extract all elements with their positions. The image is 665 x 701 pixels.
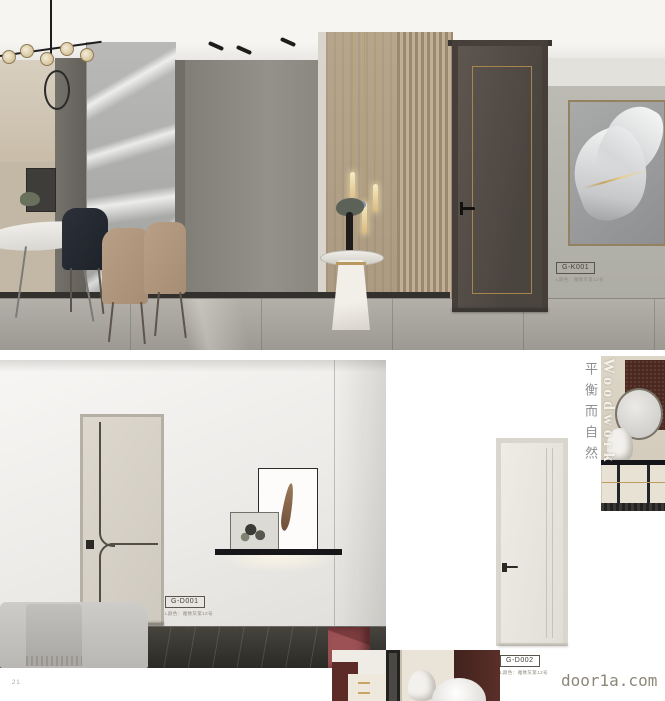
door-gd001-groove-horizontal [111, 543, 158, 545]
feather-illustration [279, 483, 295, 532]
pendant-wire [364, 32, 365, 204]
pendant-wire [375, 36, 376, 186]
black-figurine [346, 212, 353, 254]
door-gk001-handle-lever [462, 207, 475, 210]
product-spec: L颜色：雅致灰第12号 [500, 670, 548, 676]
product-code: G-K001 [556, 262, 595, 274]
tan-dining-chair [144, 222, 186, 294]
chandelier-light [60, 42, 74, 56]
door-gd001-handle [86, 540, 94, 549]
door-gd002-shadow [498, 644, 568, 647]
chandelier-light [40, 52, 54, 66]
plant-decor [20, 192, 40, 206]
chandelier-light [2, 50, 16, 64]
tan-dining-chair [102, 228, 148, 304]
chandelier-light [80, 48, 94, 62]
page-number: 21 [12, 680, 21, 686]
cabinet-gold-handle [358, 692, 370, 694]
framed-abstract-art [230, 512, 279, 551]
product-label-gd002: G-D002 L颜色：雅致灰第12号 [500, 649, 548, 676]
chandelier-rod [50, 0, 52, 60]
door-gd002-slab [501, 443, 563, 643]
door-gd001 [80, 414, 164, 626]
gray-alcove-wall [185, 60, 323, 298]
throw-blanket [26, 604, 82, 666]
pendant-bulb [373, 184, 378, 212]
product-label-gd001: G-D001 L颜色：雅致灰第12号 [165, 590, 213, 617]
shelf-light-glow [219, 555, 339, 573]
product-spec: L颜色：雅致灰第12号 [556, 277, 604, 283]
blanket-fringe [26, 656, 82, 666]
wood-panel-edge [318, 32, 326, 318]
wall-artwork [568, 100, 665, 246]
chandelier-ring [44, 70, 70, 110]
vertical-title-chinese: 平衡而自然 [581, 362, 600, 512]
door-gd001-slab [83, 417, 161, 623]
wood-slat-strips [397, 32, 453, 318]
dark-picture-inner [389, 653, 397, 701]
bottom-photo-fragment [332, 650, 500, 701]
product-code: G-D001 [165, 596, 205, 608]
door-gk001-shadow [452, 308, 548, 313]
product-code: G-D002 [500, 655, 540, 667]
cabinet-gold-handle [358, 682, 370, 684]
marble-floor [0, 298, 665, 350]
vertical-title-woodwork: Woodwork [599, 358, 617, 510]
sideboard-slot [617, 465, 620, 503]
chair-leg [70, 268, 72, 312]
door-gd002-handle-lever [506, 566, 518, 568]
gray-ottoman [0, 602, 148, 668]
side-table-gold-band [336, 262, 366, 265]
catalog-spread: G-K001 L颜色：雅致灰第12号 [0, 0, 665, 701]
pendant-wire [352, 32, 353, 174]
ceiling-shade [0, 360, 386, 372]
product-spec: L颜色：雅致灰第12号 [165, 611, 213, 617]
door-gd002 [496, 438, 568, 646]
door-gk001-gold-inlay [472, 66, 532, 294]
sideboard-slot [647, 465, 650, 503]
top-interior-photo: G-K001 L颜色：雅致灰第12号 [0, 0, 665, 350]
door-gd002-groove [552, 448, 553, 638]
wall-corner-shade [334, 360, 386, 668]
black-floating-shelf [215, 549, 342, 555]
bottom-interior-photo: G-D001 L颜色：雅致灰第12号 [0, 360, 386, 668]
product-label-gk001: G-K001 L颜色：雅致灰第12号 [556, 256, 604, 283]
door-gd002-groove [546, 448, 547, 638]
door-gd001-groove-vertical [99, 422, 101, 532]
chandelier-light [20, 44, 34, 58]
site-watermark: door1a.com [561, 671, 657, 690]
